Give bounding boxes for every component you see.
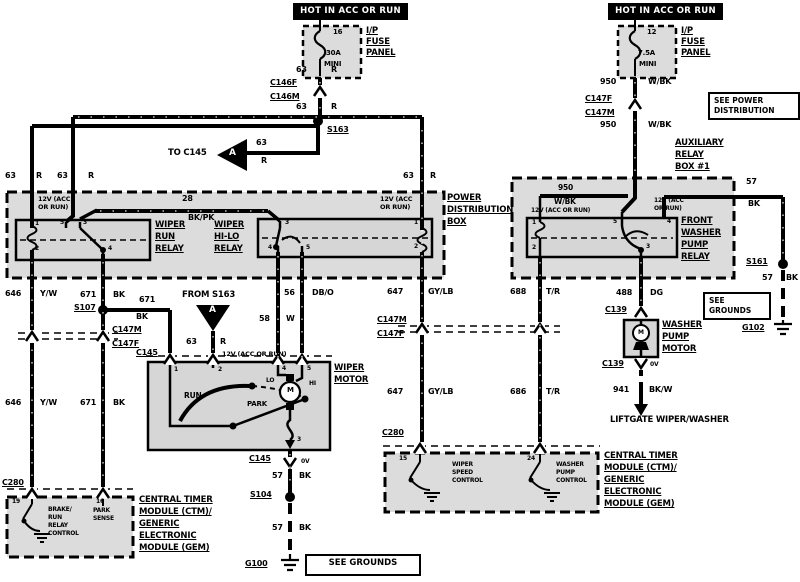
from-s163-note: FROM S163 <box>182 291 235 300</box>
washer-relay-label-2: WASHER <box>681 229 721 238</box>
aux-box-label-3: BOX #1 <box>675 163 710 172</box>
wire-646-color: Y/W <box>40 290 57 299</box>
connector-c280-left: C280 <box>2 479 24 488</box>
ctm-right-pin-24: 24 <box>527 456 535 463</box>
wire-57-color: BK <box>748 200 760 209</box>
motor-pin-2: 2 <box>218 367 222 374</box>
see-grounds-line1: SEE <box>709 296 765 306</box>
connector-c146f: C146F <box>270 79 297 88</box>
wire-941-num: 941 <box>613 386 629 395</box>
wire-63-num: 63 <box>57 172 68 181</box>
see-power-distribution-note: SEE POWER DISTRIBUTION <box>708 92 800 120</box>
wire-671-color: BK <box>113 291 125 300</box>
aux-12v-right-a: 12V (ACC <box>654 198 684 205</box>
aux-950-num: 950 <box>558 184 573 192</box>
wire-950-color: W/BK <box>648 78 671 87</box>
park-sense-label-2: SENSE <box>93 516 114 523</box>
pdb-12v-label-b: OR RUN) <box>38 204 68 211</box>
fuse-panel-left-3: PANEL <box>366 49 395 58</box>
washer-relay-pin-2: 2 <box>532 245 536 252</box>
wire-686-num: 686 <box>510 388 526 397</box>
ctm-right-label-1: CENTRAL TIMER <box>604 452 678 461</box>
wire-58-color: W <box>286 315 295 324</box>
run-relay-pin-1: 1 <box>35 221 39 228</box>
aux-12v-right-b: OR RUN) <box>654 206 682 213</box>
wire-63-color: R <box>220 338 226 347</box>
ctm-left-label-5: MODULE (GEM) <box>139 544 209 553</box>
fuse-panel-right-1: I/P <box>681 27 693 36</box>
hilo-relay-pin-5: 5 <box>306 245 310 252</box>
motor-lo-label: LO <box>266 378 274 385</box>
fuse-right-pin: 12 <box>647 29 656 37</box>
wire-57-num: 57 <box>272 472 283 481</box>
brake-run-label-3: RELAY <box>48 523 68 530</box>
fuse-left-pin: 16 <box>333 29 342 37</box>
run-relay-label-3: RELAY <box>155 245 184 254</box>
washer-relay-pin-4: 4 <box>667 219 671 226</box>
connector-c147f-right: C147F <box>377 330 404 339</box>
hilo-relay-pin-2: 2 <box>414 244 418 251</box>
washer-ctrl-label-2: PUMP <box>556 470 575 477</box>
wire-686-color: T/R <box>546 388 560 397</box>
wire-950-num: 950 <box>600 121 616 130</box>
washer-relay-pin-5: 5 <box>613 219 617 226</box>
motor-pin-1: 1 <box>174 367 178 374</box>
wire-63-color: R <box>261 157 267 166</box>
fuse-panel-left-1: I/P <box>366 27 378 36</box>
motor-pin-5: 5 <box>307 366 311 373</box>
run-relay-pin-3: 3 <box>83 220 87 227</box>
connector-c147f: C147F <box>585 95 612 104</box>
brake-run-label-4: CONTROL <box>48 531 79 538</box>
pdb-label-1: POWER <box>447 194 481 203</box>
triangle-a-down: A <box>209 306 216 316</box>
wiper-motor-label-1: WIPER <box>334 364 364 373</box>
wire-58-num: 58 <box>259 315 270 324</box>
wire-647-color: GY/LB <box>428 388 453 397</box>
wire-647-color: GY/LB <box>428 288 453 297</box>
triangle-a-left: A <box>229 149 236 159</box>
ctm-left-label-2: MODULE (CTM)/ <box>139 508 212 517</box>
wire-671-color: BK <box>113 399 125 408</box>
hilo-relay-label-1: WIPER <box>214 221 244 230</box>
wire-647-num: 647 <box>387 388 403 397</box>
splice-s163: S163 <box>327 126 349 135</box>
wire-63-num: 63 <box>256 139 267 148</box>
run-relay-label-2: RUN <box>155 233 175 242</box>
wire-647-num: 647 <box>387 288 403 297</box>
aux-box-label-2: RELAY <box>675 151 704 160</box>
brake-run-label-1: BRAKE/ <box>48 507 72 514</box>
wire-56-num: 56 <box>284 289 295 298</box>
connector-c139: C139 <box>605 306 627 315</box>
washer-relay-pin-1: 1 <box>532 220 536 227</box>
wire-28-num: 28 <box>182 195 193 204</box>
fuse-panel-right-2: FUSE <box>681 38 705 47</box>
wiring-diagram: HOT IN ACC OR RUN 16 30A MINI I/P FUSE P… <box>0 0 800 582</box>
pdb-label-3: BOX <box>447 218 466 227</box>
hilo-relay-label-3: RELAY <box>214 245 243 254</box>
motor-m-label: M <box>287 387 294 395</box>
connector-c147f-mid: C147F <box>112 340 139 349</box>
see-power-line2: DISTRIBUTION <box>714 106 794 116</box>
wire-646-color: Y/W <box>40 399 57 408</box>
ctm-right-label-3: GENERIC <box>604 476 644 485</box>
wire-646-num: 646 <box>5 399 21 408</box>
ctm-right-label-5: MODULE (GEM) <box>604 500 674 509</box>
wire-488-color: DG <box>650 289 663 298</box>
wire-950-color: W/BK <box>648 121 671 130</box>
hot-in-acc-banner-right: HOT IN ACC OR RUN <box>608 3 723 20</box>
motor-pin-4: 4 <box>282 366 286 373</box>
hilo-relay-pin-1: 1 <box>414 220 418 227</box>
ctm-left-label-3: GENERIC <box>139 520 179 529</box>
connector-c139-lower: C139 <box>602 360 624 369</box>
wire-671-num: 671 <box>80 399 96 408</box>
motor-park-label: PARK <box>247 401 267 409</box>
aux-12v-left: 12V (ACC OR RUN) <box>531 208 590 215</box>
ctm-left-pin-16: 16 <box>96 499 104 506</box>
ctm-right-label-4: ELECTRONIC <box>604 488 661 497</box>
see-power-line1: SEE POWER <box>714 96 794 106</box>
washer-relay-label-3: PUMP <box>681 241 708 250</box>
aux-950-color: W/BK <box>554 198 576 206</box>
wire-57-color: BK <box>299 524 311 533</box>
see-grounds-line2: GROUNDS <box>709 306 765 316</box>
motor-0v-label: 0V <box>301 459 309 466</box>
wiper-speed-label-2: SPEED <box>452 470 473 477</box>
connector-c145: C145 <box>136 349 158 358</box>
washer-ctrl-label-1: WASHER <box>556 462 584 469</box>
wire-671-branch-color: BK <box>136 313 148 322</box>
wire-57-color: BK <box>299 472 311 481</box>
wire-688-num: 688 <box>510 288 526 297</box>
wire-57-num: 57 <box>746 178 757 187</box>
park-sense-label-1: PARK <box>93 508 110 515</box>
fuse-panel-right-3: PANEL <box>681 49 710 58</box>
see-grounds-note-right: SEE GROUNDS <box>703 292 771 320</box>
brake-run-label-2: RUN <box>48 515 62 522</box>
wire-488-num: 488 <box>616 289 632 298</box>
washer-motor-label-2: PUMP <box>662 333 689 342</box>
wiper-speed-label-3: CONTROL <box>452 478 483 485</box>
wire-63-num: 63 <box>186 338 197 347</box>
washer-motor-label-3: MOTOR <box>662 345 696 354</box>
run-relay-pin-2: 2 <box>35 246 39 253</box>
washer-ctrl-label-3: CONTROL <box>556 478 587 485</box>
wire-28-color: BK/PK <box>188 214 214 223</box>
washer-0v-label: 0V <box>650 362 658 369</box>
wire-56-color: DB/O <box>312 289 334 298</box>
wire-646-num: 646 <box>5 290 21 299</box>
fuse-right-rating: 7.5A <box>638 50 655 58</box>
washer-relay-label-1: FRONT <box>681 217 713 226</box>
run-relay-pin-4: 4 <box>108 246 112 253</box>
motor-pin-3: 3 <box>297 437 301 444</box>
wire-63-num: 63 <box>296 103 307 112</box>
wire-941-color: BK/W <box>649 386 672 395</box>
ground-g100: G100 <box>245 560 267 569</box>
ctm-left-pin-19: 19 <box>12 499 20 506</box>
hilo-relay-pin-4: 4 <box>268 245 272 252</box>
wire-63-num: 63 <box>5 172 16 181</box>
splice-s107: S107 <box>74 304 96 313</box>
run-relay-label-1: WIPER <box>155 221 185 230</box>
motor-run-label: RUN <box>184 392 202 400</box>
wire-63-num: 63 <box>296 66 307 75</box>
wire-671-num: 671 <box>80 291 96 300</box>
wire-63-num: 63 <box>403 172 414 181</box>
see-grounds-note-bottom: SEE GROUNDS <box>305 554 421 576</box>
liftgate-note: LIFTGATE WIPER/WASHER <box>610 416 729 425</box>
hilo-12v-label-b: OR RUN) <box>380 204 410 211</box>
connector-c280-right: C280 <box>382 429 404 438</box>
connector-c145-lower: C145 <box>249 455 271 464</box>
washer-motor-label-1: WASHER <box>662 321 702 330</box>
washer-relay-label-4: RELAY <box>681 253 710 262</box>
wire-57-num: 57 <box>272 524 283 533</box>
splice-s161: S161 <box>746 258 768 267</box>
wire-63-color: R <box>430 172 436 181</box>
wire-63-color: R <box>331 66 337 75</box>
splice-s104: S104 <box>250 491 272 500</box>
wire-63-color: R <box>36 172 42 181</box>
wire-57-num: 57 <box>762 274 773 283</box>
to-c145-note: TO C145 <box>168 149 207 158</box>
motor-hi-label: HI <box>309 381 316 388</box>
wire-950-num: 950 <box>600 78 616 87</box>
fuse-panel-left-2: FUSE <box>366 38 390 47</box>
connector-c146m: C146M <box>270 93 300 102</box>
wire-671-branch-num: 671 <box>139 296 155 305</box>
motor-12v-label: 12V (ACC OR RUN) <box>222 351 286 358</box>
wiper-speed-label-1: WIPER <box>452 462 473 469</box>
washer-motor-m: M <box>638 330 644 337</box>
washer-relay-pin-3: 3 <box>646 244 650 251</box>
wire-57-color: BK <box>786 274 798 283</box>
ground-g102: G102 <box>742 324 764 333</box>
ctm-left-label-4: ELECTRONIC <box>139 532 196 541</box>
run-relay-pin-5: 5 <box>60 220 64 227</box>
wiper-motor-label-2: MOTOR <box>334 376 368 385</box>
ctm-right-label-2: MODULE (CTM)/ <box>604 464 677 473</box>
fuse-right-size: MINI <box>639 61 656 69</box>
hot-in-acc-banner-left: HOT IN ACC OR RUN <box>293 3 408 20</box>
connector-c147m: C147M <box>585 109 615 118</box>
connector-c147m-right: C147M <box>377 316 407 325</box>
hilo-relay-pin-3: 3 <box>285 220 289 227</box>
ctm-left-label-1: CENTRAL TIMER <box>139 496 213 505</box>
ctm-right-pin-15: 15 <box>399 456 407 463</box>
hilo-relay-label-2: HI-LO <box>214 233 239 242</box>
aux-box-label-1: AUXILIARY <box>675 139 724 148</box>
fuse-left-rating: 30A <box>326 50 341 58</box>
connector-c147m-mid: C147M <box>112 326 142 335</box>
wire-63-color: R <box>331 103 337 112</box>
wire-688-color: T/R <box>546 288 560 297</box>
pdb-label-2: DISTRIBUTION <box>447 206 513 215</box>
wire-63-color: R <box>88 172 94 181</box>
